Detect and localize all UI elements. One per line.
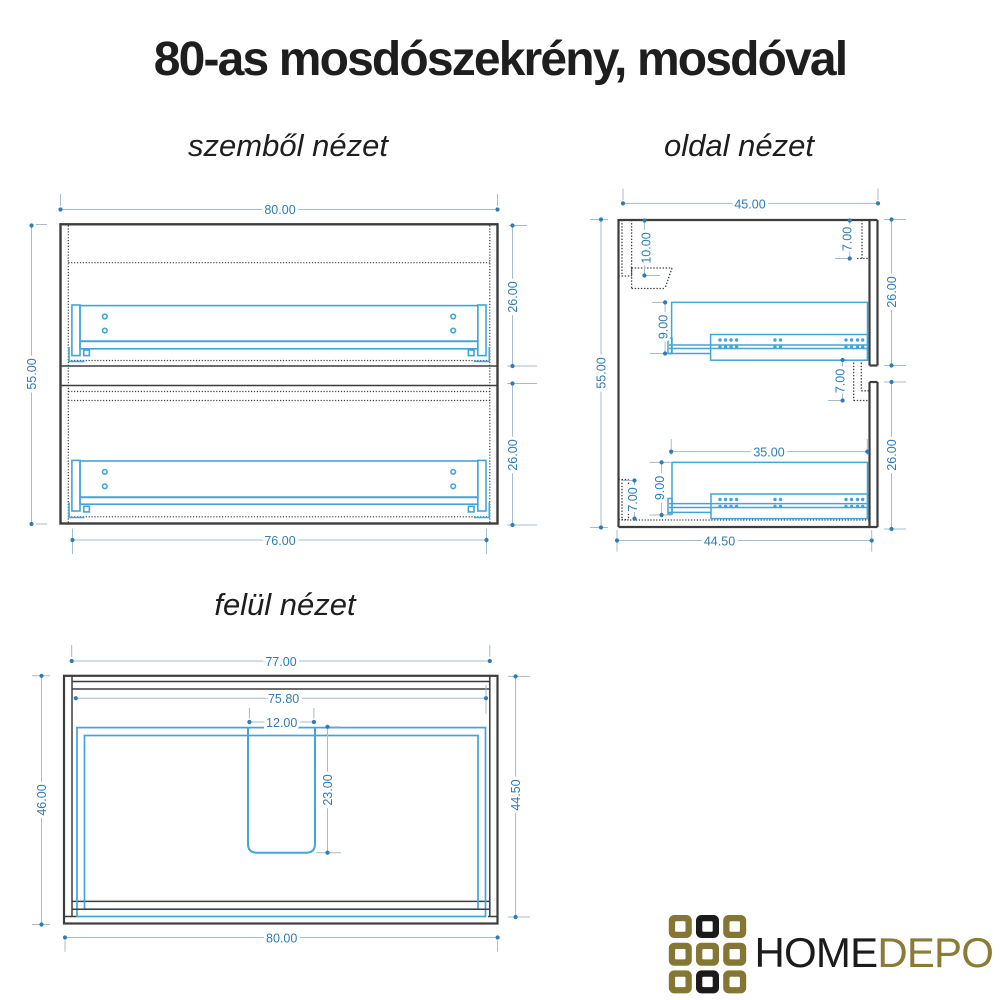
- svg-text:35.00: 35.00: [753, 446, 784, 460]
- svg-text:55.00: 55.00: [594, 357, 608, 388]
- svg-text:75.80: 75.80: [268, 692, 299, 706]
- svg-text:10.00: 10.00: [639, 232, 653, 263]
- svg-text:45.00: 45.00: [734, 197, 765, 211]
- svg-text:9.00: 9.00: [653, 476, 667, 500]
- svg-text:55.00: 55.00: [25, 358, 39, 389]
- svg-text:7.00: 7.00: [840, 227, 854, 251]
- svg-text:7.00: 7.00: [833, 369, 847, 393]
- svg-text:80-as mosdószekrény, mosdóval: 80-as mosdószekrény, mosdóval: [154, 33, 846, 86]
- svg-text:44.50: 44.50: [704, 535, 735, 549]
- svg-text:7.00: 7.00: [626, 487, 640, 511]
- svg-text:80.00: 80.00: [266, 932, 297, 946]
- svg-text:9.00: 9.00: [656, 315, 670, 339]
- svg-text:szemből nézet: szemből nézet: [188, 128, 389, 163]
- svg-text:26.00: 26.00: [506, 439, 520, 470]
- svg-text:23.00: 23.00: [321, 774, 335, 805]
- svg-text:76.00: 76.00: [264, 534, 295, 548]
- svg-text:HOMEDEPO: HOMEDEPO: [755, 929, 994, 976]
- svg-text:26.00: 26.00: [885, 439, 899, 470]
- svg-text:46.00: 46.00: [35, 784, 49, 815]
- svg-text:26.00: 26.00: [506, 281, 520, 312]
- svg-text:12.00: 12.00: [266, 716, 297, 730]
- svg-text:77.00: 77.00: [265, 655, 296, 669]
- svg-text:44.50: 44.50: [509, 779, 523, 810]
- svg-text:felül nézet: felül nézet: [214, 587, 357, 622]
- svg-text:80.00: 80.00: [264, 203, 295, 217]
- svg-text:26.00: 26.00: [885, 276, 899, 307]
- svg-text:oldal nézet: oldal nézet: [664, 128, 815, 163]
